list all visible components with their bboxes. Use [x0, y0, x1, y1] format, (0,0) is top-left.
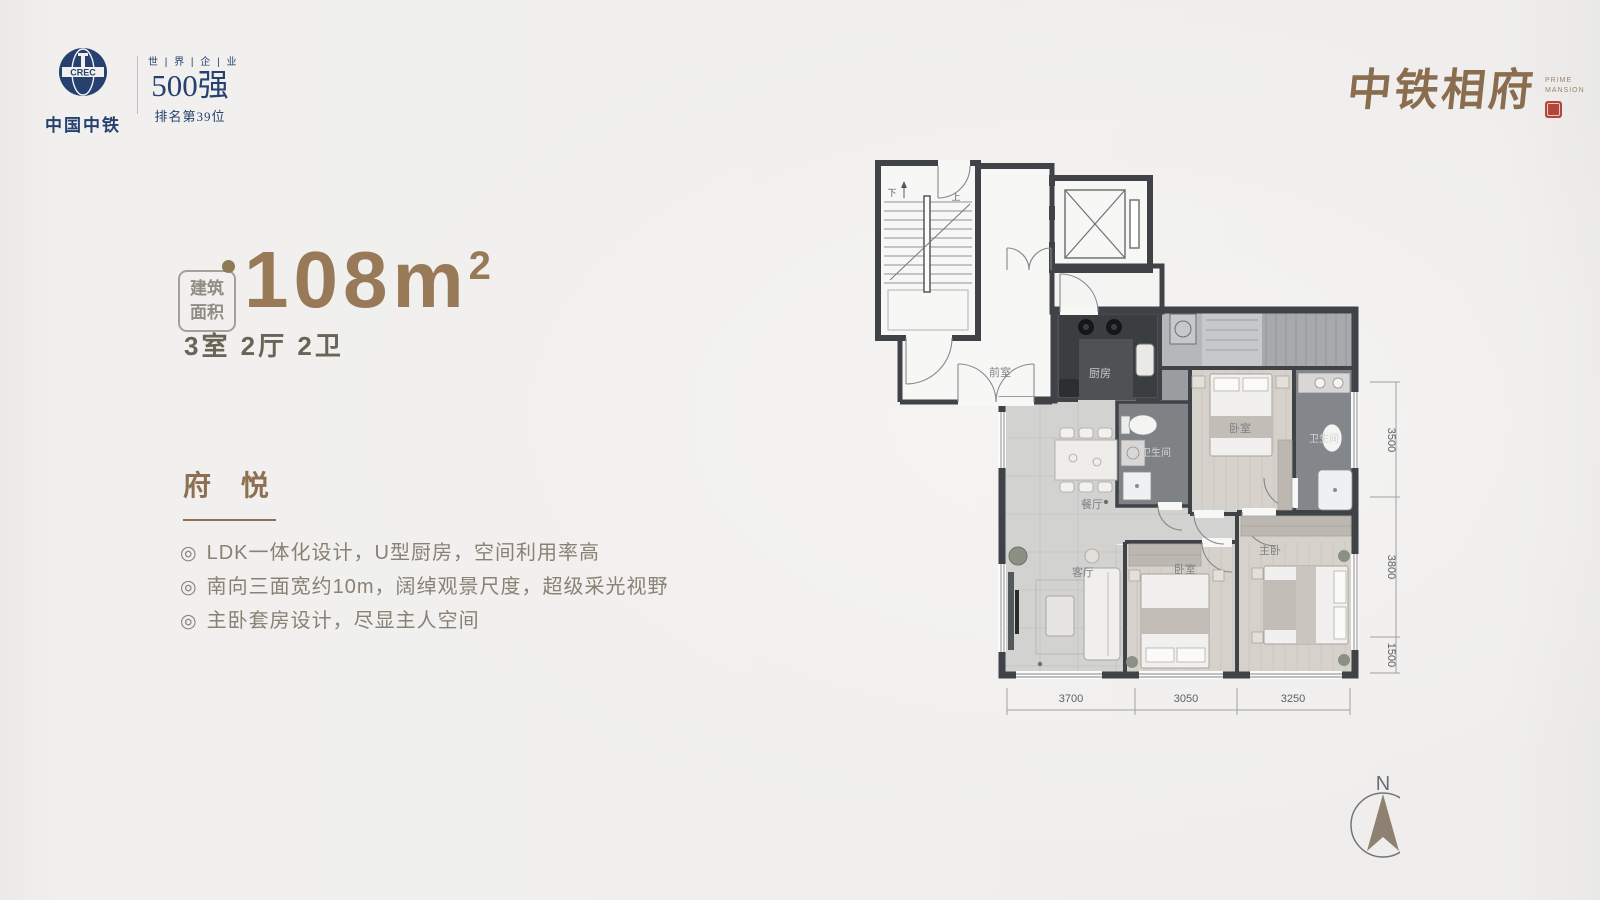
dimension-bottom: 3700 3050 3250 [1007, 688, 1350, 715]
room-label-living: 客厅 [1072, 565, 1094, 579]
bullet-icon: ◎ [180, 574, 198, 602]
brand-side: PRIME MANSION [1545, 54, 1585, 118]
area-badge: 建筑 面积 [178, 270, 236, 332]
section-title: 府 悦 [183, 464, 280, 504]
stair-up-label: 上 [951, 192, 960, 202]
fortune-500-badge: 世 | 界 | 企 | 业 500强 排名第39位 [148, 53, 232, 125]
brand-block: 中铁相府 PRIME MANSION [1348, 54, 1585, 118]
area-badge-dot-icon [222, 260, 235, 273]
fortune-top-text: 世 | 界 | 企 | 业 [148, 53, 232, 68]
brand-name: 中铁相府 [1345, 54, 1540, 118]
area-value: 108 [244, 235, 392, 324]
room-label-dining: 餐厅 [1081, 497, 1103, 511]
header-divider [137, 56, 138, 114]
dim-right-1: 3500 [1385, 428, 1397, 452]
room-label-bath-right: 卫生间 [1309, 432, 1339, 445]
section-divider [183, 519, 276, 521]
dim-right-2: 3800 [1385, 555, 1397, 579]
dim-bottom-3: 3250 [1281, 693, 1305, 705]
room-label-bath-middle: 卫生间 [1141, 446, 1171, 459]
dimension-right: 3500 3800 1500 [1370, 382, 1400, 673]
stair-down-label: 下 [887, 188, 896, 198]
room-label-bedroom-north: 卧室 [1229, 421, 1251, 435]
feature-text: LDK一体化设计，U型厨房，空间利用率高 [207, 540, 600, 567]
bullet-icon: ◎ [180, 540, 198, 568]
feature-text: 主卧套房设计，尽显主人空间 [207, 608, 480, 635]
north-compass-icon: N [1351, 773, 1400, 857]
room-label-kitchen: 厨房 [1089, 367, 1111, 380]
room-label-bedroom-middle: 卧室 [1174, 562, 1196, 576]
area-headline: 108m2 [244, 234, 491, 326]
bullet-icon: ◎ [180, 608, 198, 636]
crec-abbr-text: CREC [70, 68, 96, 78]
room-label-master: 主卧 [1259, 544, 1281, 557]
poster-page: { "header": { "logo": {"name": "中国中铁", "… [0, 0, 1600, 900]
dim-bottom-2: 3050 [1174, 693, 1198, 705]
area-unit: m [392, 235, 468, 324]
dim-right-3: 1500 [1385, 643, 1397, 667]
fortune-main-text: 500强 [148, 70, 232, 103]
floorplan: 下 上 [840, 140, 1400, 860]
feature-text: 南向三面宽约10m，阔绰观景尺度，超级采光视野 [207, 574, 669, 601]
room-label-vestibule: 前室 [989, 365, 1011, 379]
compass-n-label: N [1376, 773, 1390, 795]
dim-bottom-1: 3700 [1059, 693, 1083, 705]
feature-item: ◎ 主卧套房设计，尽显主人空间 [180, 608, 669, 642]
fortune-rank-text: 排名第39位 [148, 106, 232, 125]
feature-list: ◎ LDK一体化设计，U型厨房，空间利用率高 ◎ 南向三面宽约10m，阔绰观景尺… [180, 540, 669, 642]
crec-logo-name: 中国中铁 [44, 111, 122, 136]
feature-item: ◎ 南向三面宽约10m，阔绰观景尺度，超级采光视野 [180, 574, 669, 608]
crec-logo-block: CREC 中国中铁 [44, 46, 122, 136]
crec-globe-icon: CREC [55, 46, 111, 102]
area-badge-line2: 面积 [190, 301, 224, 325]
brand-en-line1: PRIME [1545, 76, 1585, 86]
area-sup: 2 [469, 244, 491, 288]
area-badge-line1: 建筑 [190, 277, 224, 301]
feature-item: ◎ LDK一体化设计，U型厨房，空间利用率高 [180, 540, 669, 574]
room-layout-text: 3室 2厅 2卫 [184, 326, 344, 363]
brand-seal-icon [1545, 101, 1562, 118]
brand-en-line2: MANSION [1545, 86, 1585, 96]
elevator [1047, 178, 1150, 270]
